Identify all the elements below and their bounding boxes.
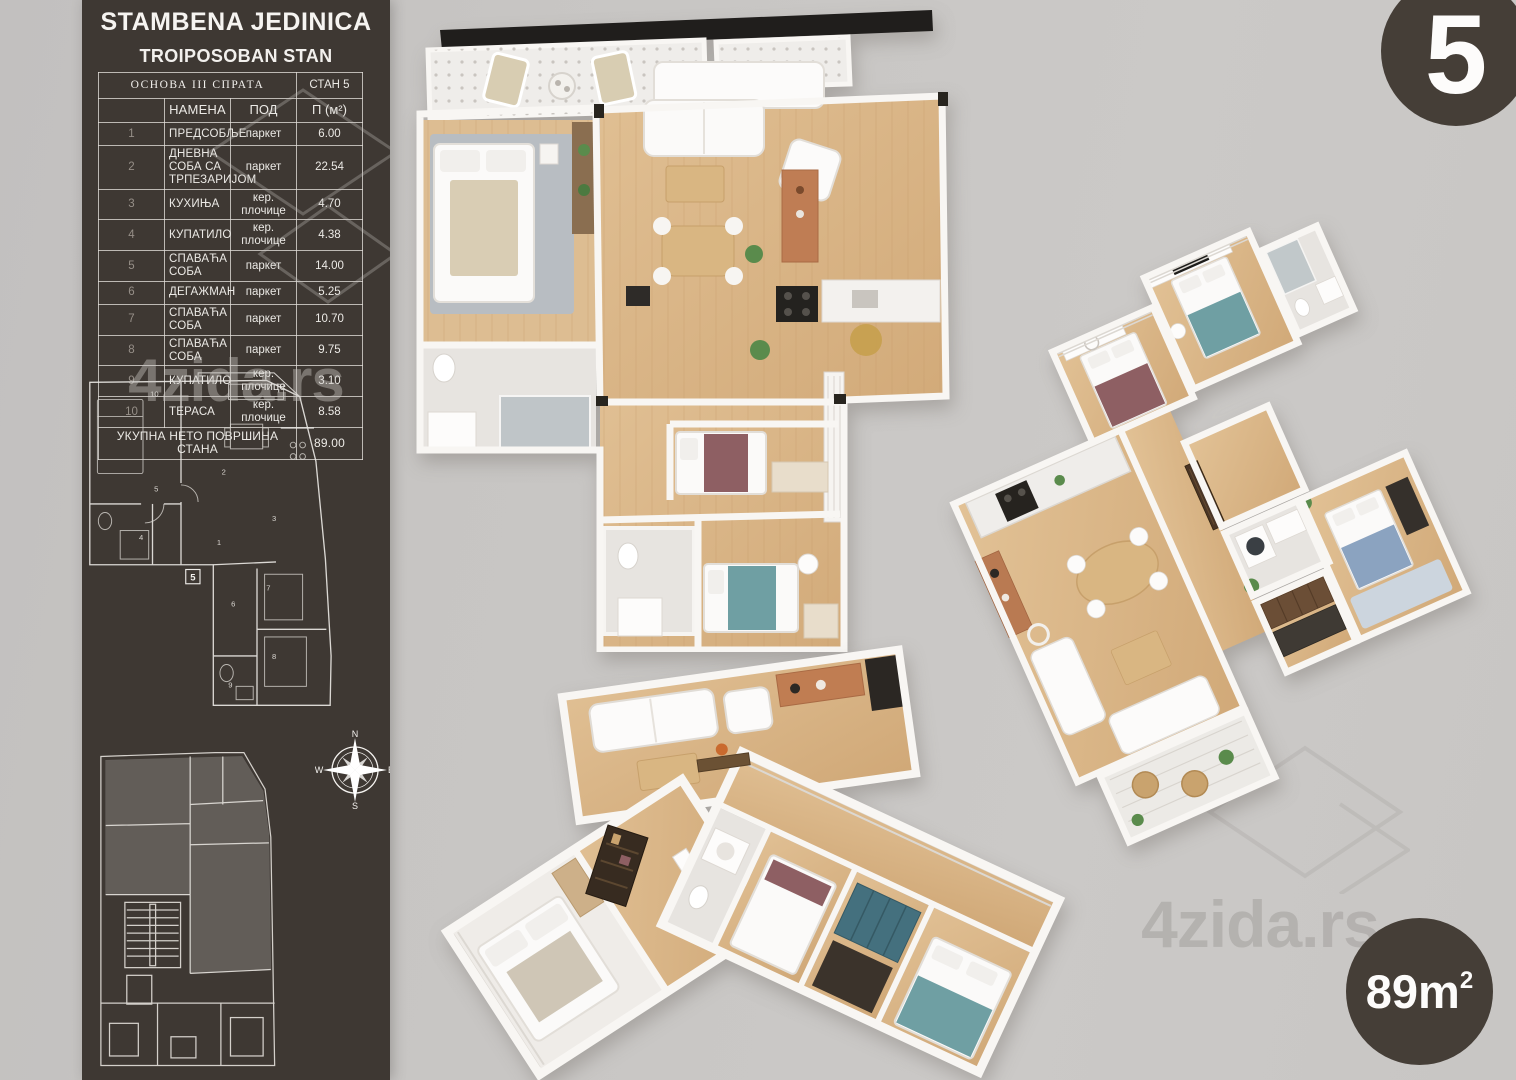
floor-plan-poster: STAMBENA JEDINICA TROIPOSOBAN STAN ОСНОВ… bbox=[0, 0, 1516, 1080]
stove bbox=[776, 286, 818, 322]
console-desk bbox=[626, 286, 650, 306]
shelving-unit bbox=[572, 122, 596, 234]
desk bbox=[772, 462, 828, 492]
col-area: П (м²) bbox=[297, 99, 363, 123]
svg-text:W: W bbox=[315, 765, 324, 775]
table-row: 4 КУПАТИЛО кер. плочице 4.38 bbox=[99, 220, 363, 251]
sink bbox=[852, 290, 878, 308]
shower bbox=[500, 396, 590, 448]
page-subtitle: TROIPOSOBAN STAN bbox=[82, 46, 390, 67]
svg-text:E: E bbox=[388, 765, 390, 775]
compass-rose-icon: N E S W bbox=[315, 730, 390, 810]
table-header-right: СТАН 5 bbox=[297, 73, 363, 99]
svg-text:2: 2 bbox=[222, 468, 226, 477]
svg-text:8: 8 bbox=[272, 652, 276, 661]
unit-number-badge: 5 bbox=[1381, 0, 1516, 126]
area-superscript: 2 bbox=[1460, 967, 1473, 995]
table-row: 2 ДНЕВНА СОБА СА ТРПЕЗАРИЈОМ паркет 22.5… bbox=[99, 146, 363, 190]
svg-text:6: 6 bbox=[231, 600, 235, 609]
bathroom-2 bbox=[604, 528, 694, 636]
sidebar: STAMBENA JEDINICA TROIPOSOBAN STAN ОСНОВ… bbox=[82, 0, 390, 1080]
plant bbox=[745, 245, 763, 263]
svg-text:3: 3 bbox=[272, 514, 276, 523]
svg-text:7: 7 bbox=[266, 583, 270, 592]
lounge-chair bbox=[591, 51, 636, 105]
table-row: 3 КУХИЊА кер. плочице 4.70 bbox=[99, 189, 363, 220]
render-3d-top-view bbox=[404, 4, 952, 652]
table-row: 5 СПАВАЋА СОБА паркет 14.00 bbox=[99, 251, 363, 282]
armchair bbox=[723, 686, 773, 734]
plant bbox=[750, 340, 770, 360]
plan-room-markers: 10 5 2 3 4 1 6 7 8 9 bbox=[139, 390, 276, 690]
floor-plan-2d-overview bbox=[98, 742, 290, 1080]
coffee-table bbox=[666, 166, 724, 202]
toilet bbox=[618, 543, 638, 569]
svg-text:10: 10 bbox=[150, 390, 158, 399]
col-namena: НАМЕНА bbox=[165, 99, 231, 123]
render-3d-isometric-bottom bbox=[412, 642, 1107, 1080]
page-title: STAMBENA JEDINICA bbox=[82, 8, 390, 37]
svg-text:S: S bbox=[352, 801, 358, 810]
plan-unit-label: 5 bbox=[186, 570, 200, 584]
svg-text:1: 1 bbox=[217, 538, 221, 547]
terrace-table bbox=[549, 73, 575, 99]
bedroom-main bbox=[430, 122, 596, 314]
svg-text:5: 5 bbox=[190, 572, 196, 583]
floor-plan-2d-unit: 10 5 2 3 4 1 6 7 8 9 5 bbox=[86, 362, 352, 720]
table-row: 6 ДЕГАЖМАН паркет 5.25 bbox=[99, 281, 363, 304]
svg-text:5: 5 bbox=[154, 485, 158, 494]
round-rug bbox=[850, 324, 882, 356]
area-badge: 89m2 bbox=[1346, 918, 1493, 1065]
chair bbox=[798, 554, 818, 574]
svg-text:9: 9 bbox=[228, 680, 232, 689]
counter bbox=[822, 280, 940, 322]
right-wing bbox=[662, 752, 1060, 1072]
desk bbox=[804, 604, 838, 638]
svg-text:N: N bbox=[352, 730, 359, 739]
col-pod: ПОД bbox=[231, 99, 297, 123]
table-header-left: ОСНОВА III СПРАТА bbox=[99, 73, 297, 99]
table-header-row: ОСНОВА III СПРАТА СТАН 5 bbox=[99, 73, 363, 99]
table-row: 7 СПАВАЋА СОБА паркет 10.70 bbox=[99, 304, 363, 335]
table-row: 1 ПРЕДСОБЉЕ паркет 6.00 bbox=[99, 123, 363, 146]
vanity bbox=[618, 598, 662, 636]
vanity bbox=[428, 412, 476, 448]
teal-blanket bbox=[728, 566, 776, 630]
maroon-blanket bbox=[704, 434, 748, 492]
table-columns-row: НАМЕНА ПОД П (м²) bbox=[99, 99, 363, 123]
area-value: 89m bbox=[1366, 964, 1460, 1019]
unit-number: 5 bbox=[1425, 0, 1487, 119]
svg-text:4: 4 bbox=[139, 533, 143, 542]
dining-table bbox=[662, 226, 734, 276]
toilet bbox=[433, 354, 455, 382]
